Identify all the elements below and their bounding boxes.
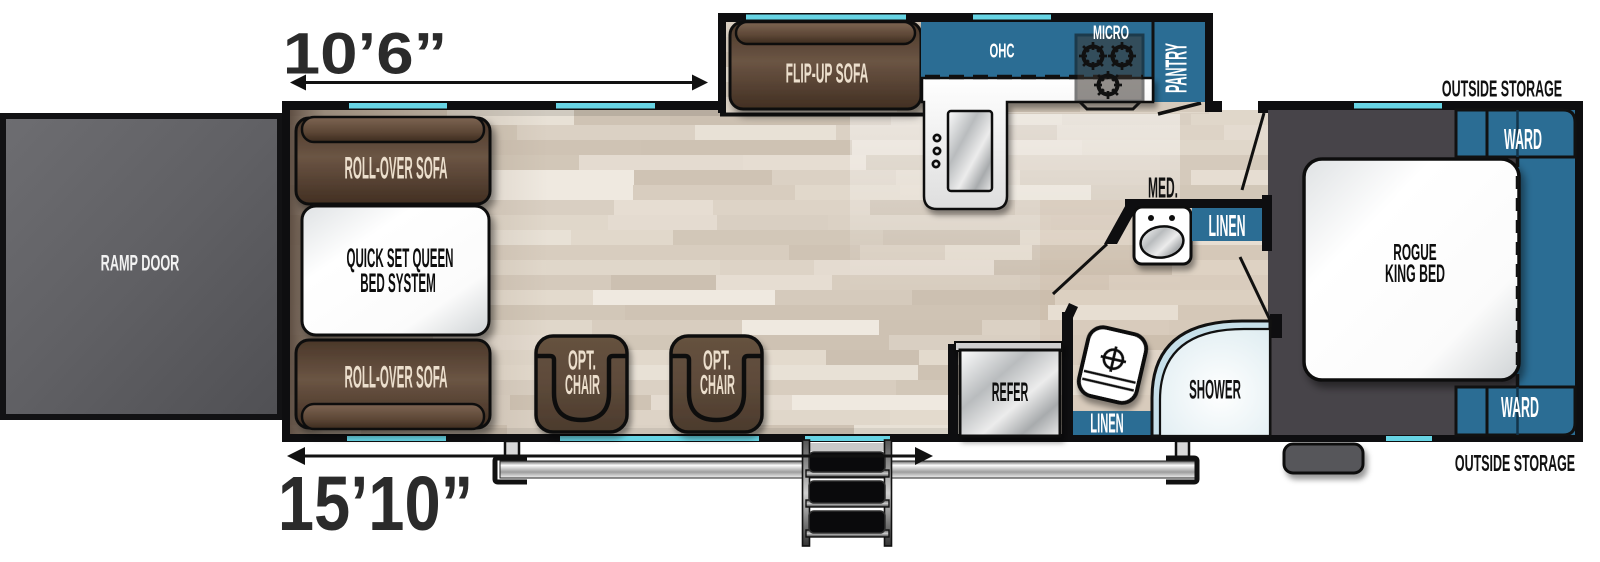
svg-text:KING BED: KING BED: [1385, 260, 1445, 288]
svg-text:RAMP DOOR: RAMP DOOR: [101, 251, 180, 275]
svg-text:PANTRY: PANTRY: [1159, 43, 1193, 93]
svg-text:OHC: OHC: [990, 40, 1015, 62]
svg-text:SHOWER: SHOWER: [1189, 375, 1241, 405]
svg-text:WARD: WARD: [1504, 123, 1542, 155]
svg-text:CHAIR: CHAIR: [565, 370, 600, 400]
svg-text:OUTSIDE STORAGE: OUTSIDE STORAGE: [1442, 75, 1562, 101]
svg-text:CHAIR: CHAIR: [700, 370, 735, 400]
svg-text:ROLL-OVER SOFA: ROLL-OVER SOFA: [344, 360, 447, 396]
svg-text:ROLL-OVER SOFA: ROLL-OVER SOFA: [344, 151, 447, 187]
svg-text:LINEN: LINEN: [1209, 208, 1246, 242]
svg-text:MED.: MED.: [1148, 171, 1178, 204]
svg-text:10’6”: 10’6”: [283, 22, 448, 87]
svg-text:BED SYSTEM: BED SYSTEM: [360, 269, 436, 299]
svg-text:REFER: REFER: [992, 379, 1029, 408]
svg-text:15’10”: 15’10”: [278, 461, 473, 547]
svg-text:LINEN: LINEN: [1090, 409, 1123, 439]
svg-text:WARD: WARD: [1501, 391, 1539, 423]
svg-text:OUTSIDE STORAGE: OUTSIDE STORAGE: [1455, 450, 1575, 476]
svg-text:MICRO: MICRO: [1093, 23, 1129, 44]
svg-text:FLIP-UP SOFA: FLIP-UP SOFA: [786, 58, 869, 89]
